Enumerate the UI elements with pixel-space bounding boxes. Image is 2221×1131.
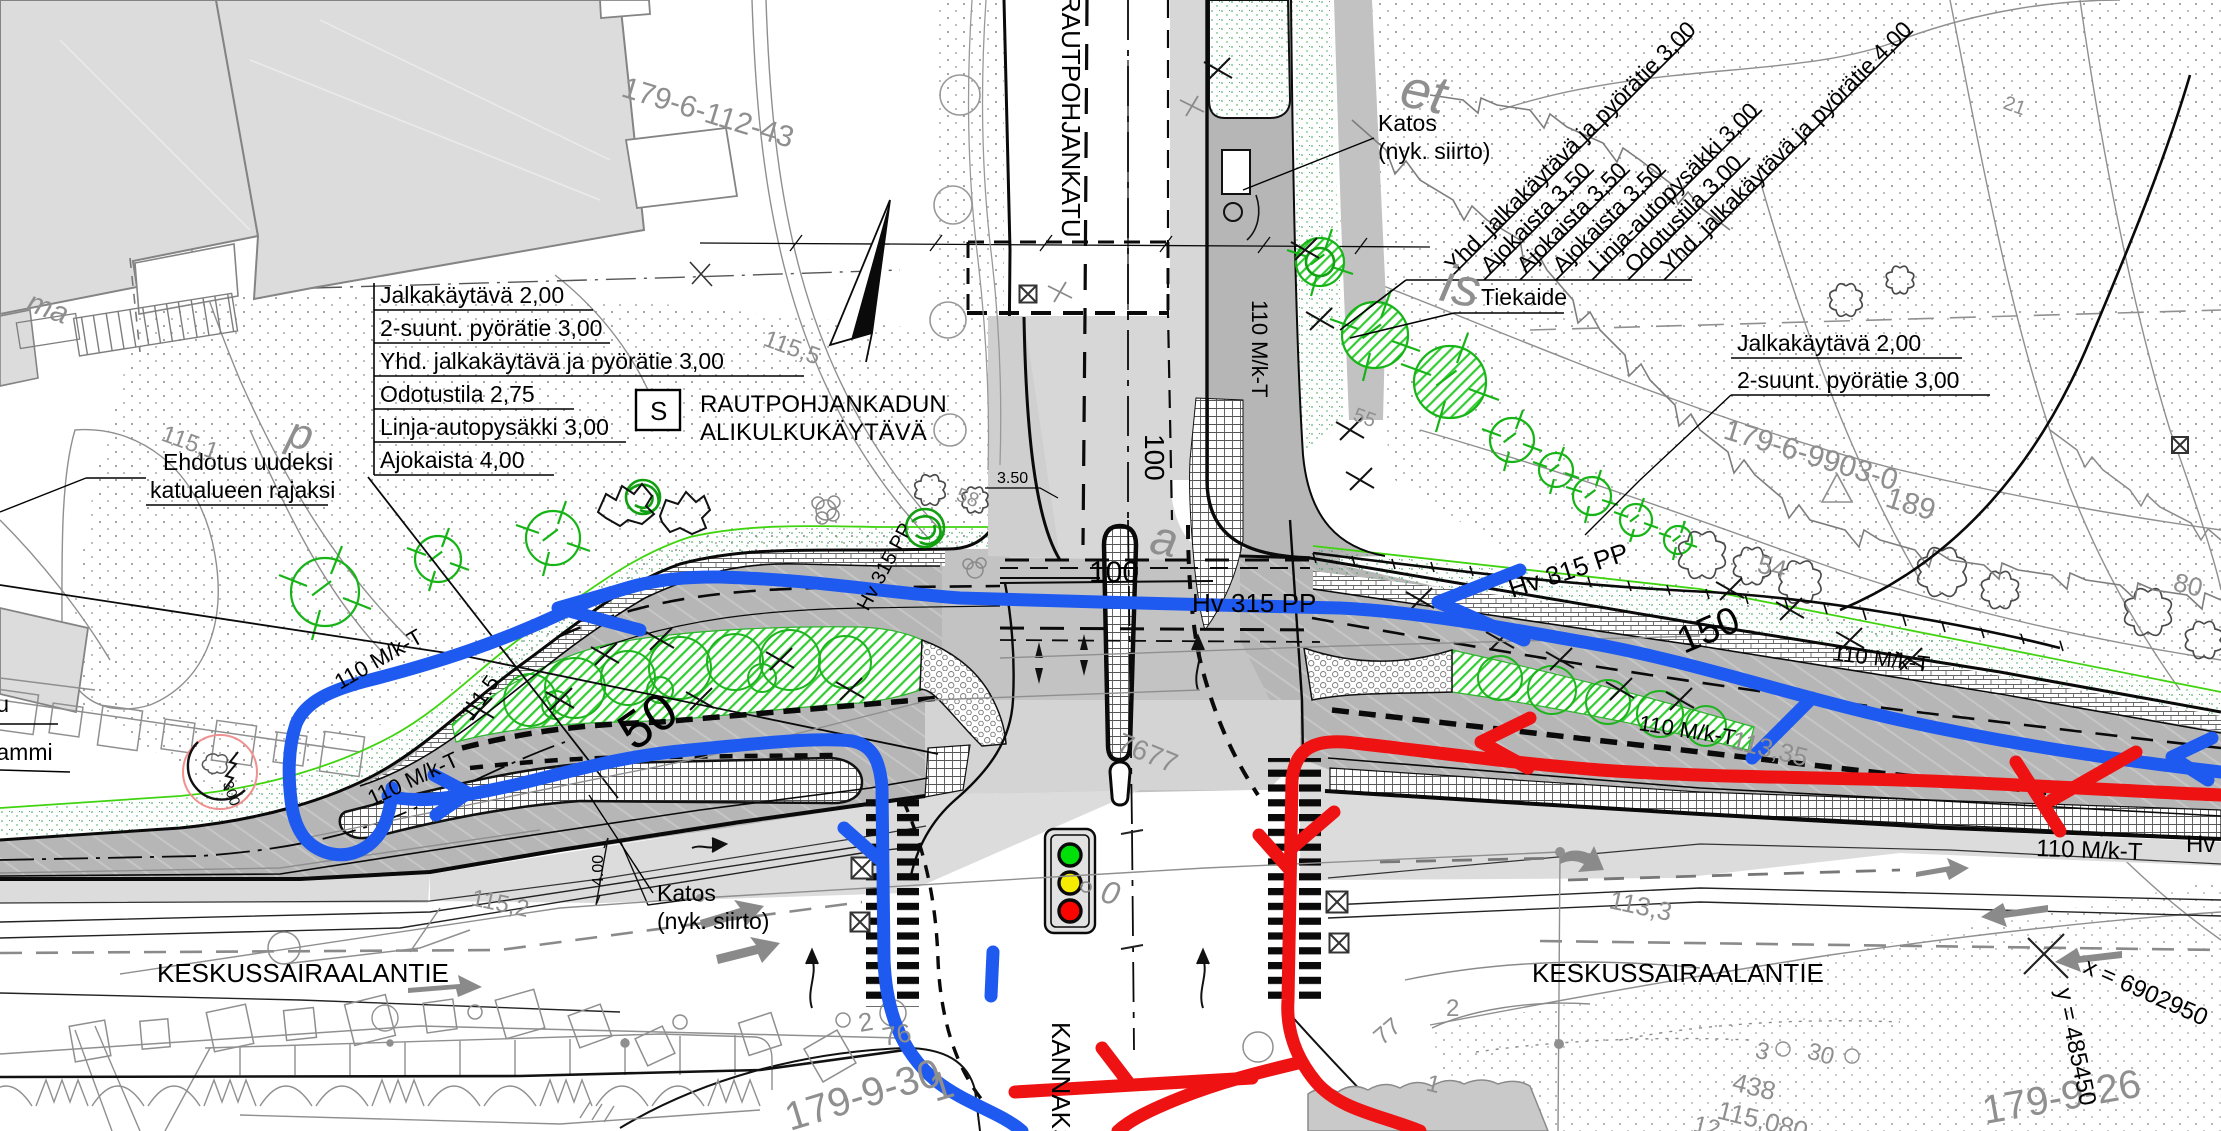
svg-text:tammi: tammi	[0, 739, 53, 765]
svg-text:3.50: 3.50	[997, 470, 1028, 487]
svg-text:4.00: 4.00	[590, 855, 607, 886]
svg-text:ALIKULKUKÄYTÄVÄ: ALIKULKUKÄYTÄVÄ	[700, 419, 927, 446]
svg-text:(nyk. siirto): (nyk. siirto)	[1378, 138, 1490, 164]
svg-text:katualueen rajaksi: katualueen rajaksi	[150, 477, 335, 503]
svg-text:100: 100	[1089, 556, 1139, 589]
svg-text:Katos: Katos	[657, 880, 716, 906]
svg-text:eltu: eltu	[0, 691, 9, 717]
svg-text:KESKUSSAIRAALANTIE: KESKUSSAIRAALANTIE	[157, 958, 449, 988]
svg-text:Yhd. jalkakäytävä ja pyörätie: Yhd. jalkakäytävä ja pyörätie 3,00	[380, 348, 724, 374]
svg-text:110 M/k-T: 110 M/k-T	[1247, 300, 1272, 397]
svg-text:Jalkakäytävä 2,00: Jalkakäytävä 2,00	[380, 282, 564, 308]
svg-text:2-suunt. pyörätie 3,00: 2-suunt. pyörätie 3,00	[380, 315, 602, 341]
svg-text:Hv 315 PP: Hv 315 PP	[1192, 588, 1316, 618]
svg-text:Odotustila 2,75: Odotustila 2,75	[380, 381, 535, 407]
svg-text:RAUTPOHJANKATU: RAUTPOHJANKATU	[1056, 0, 1086, 238]
svg-text:100: 100	[1139, 434, 1170, 481]
svg-text:Ajokaista 4,00: Ajokaista 4,00	[380, 447, 524, 473]
svg-text:S: S	[650, 396, 667, 426]
svg-text:RAUTPOHJANKADUN: RAUTPOHJANKADUN	[700, 391, 947, 418]
svg-text:KANNAKSENKATU: KANNAKSENKATU	[1046, 1022, 1076, 1131]
svg-text:(nyk. siirto): (nyk. siirto)	[657, 908, 769, 934]
svg-text:110 M/k-T: 110 M/k-T	[2036, 835, 2143, 866]
svg-text:Hv 3: Hv 3	[2186, 831, 2221, 858]
svg-text:2-suunt. pyörätie 3,00: 2-suunt. pyörätie 3,00	[1737, 367, 1959, 393]
svg-text:2: 2	[1446, 995, 1459, 1022]
svg-text:Jalkakäytävä 2,00: Jalkakäytävä 2,00	[1737, 330, 1921, 356]
svg-text:KESKUSSAIRAALANTIE: KESKUSSAIRAALANTIE	[1532, 958, 1824, 988]
svg-text:76: 76	[880, 1017, 914, 1052]
svg-text:Linja-autopysäkki 3,00: Linja-autopysäkki 3,00	[380, 414, 609, 440]
svg-text:Tiekaide: Tiekaide	[1481, 284, 1567, 310]
